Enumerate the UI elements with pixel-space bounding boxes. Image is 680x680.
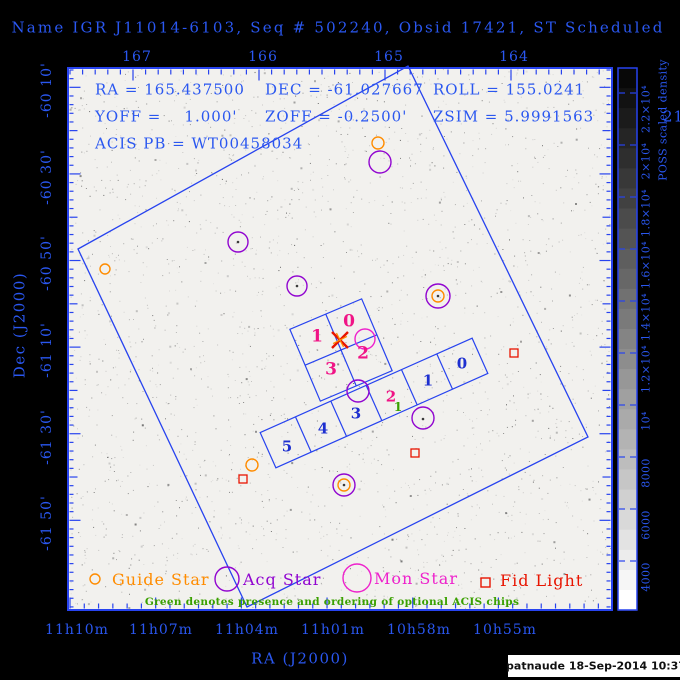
optional-chips-note: Green denotes presence and ordering of o… [145, 597, 519, 608]
colorbar [618, 68, 637, 611]
acis-s-chip-label: 4 [318, 422, 328, 437]
colorbar-tick: 6000 [641, 510, 652, 540]
acis-i-chip-label: 2 [357, 346, 369, 363]
left-axis-tick: -61 50' [40, 495, 54, 551]
left-axis-tick: -60 30' [40, 149, 54, 205]
acis-i-chip-label: 3 [325, 362, 337, 379]
acis-s-chip-label: 0 [457, 357, 467, 372]
legend-mon-star-label: Mon Star [374, 571, 458, 587]
legend-guide-star-label: Guide Star [112, 572, 210, 588]
bottom-axis-tick: 11h04m [215, 623, 279, 637]
colorbar-tick: 1.6×10⁴ [641, 241, 652, 289]
bottom-axis-tick: 10h55m [473, 623, 537, 637]
colorbar-tick: 4000 [641, 562, 652, 592]
credit-box: patnaude 18-Sep-2014 10:37 [508, 655, 680, 677]
legend-fid-light-label: Fid Light [500, 573, 583, 589]
legend-acq-star-label: Acq Star [243, 572, 321, 588]
acis-i-chip-label: 1 [311, 329, 323, 346]
star-dot [237, 241, 240, 244]
bottom-axis-tick: 11h07m [129, 623, 193, 637]
param-acis-pb: ACIS PB = WT00458034 [95, 137, 303, 152]
acis-s-chip-label: 3 [351, 407, 361, 422]
star-dot [296, 285, 299, 288]
param-zoff: ZOFF = -0.2500' [265, 110, 407, 125]
bottom-axis-tick: 11h01m [301, 623, 365, 637]
colorbar-tick: 10⁴ [641, 411, 652, 431]
left-axis-tick: -60 10' [40, 62, 54, 118]
colorbar-label: POSS scaled density [658, 59, 669, 181]
top-axis-tick: 167 [122, 50, 152, 64]
x-axis-label: RA (J2000) [251, 652, 349, 667]
star-dot [437, 295, 440, 298]
colorbar-tick: 8000 [641, 458, 652, 488]
colorbar-tick: 1.4×10⁴ [641, 293, 652, 341]
param-roll: ROLL = 155.0241 [433, 83, 585, 98]
credit-text: patnaude 18-Sep-2014 10:37 [506, 661, 680, 672]
param-ra: RA = 165.437500 [95, 83, 245, 98]
acis-i-chip-label: 0 [343, 314, 355, 331]
param-yoff: YOFF = 1.000' [95, 110, 238, 125]
top-axis-tick: 164 [499, 50, 529, 64]
acis-s-optional-order-label: 1 [394, 401, 402, 413]
left-axis-tick: -61 30' [40, 409, 54, 465]
colorbar-tick: 2.2×10⁴ [641, 85, 652, 133]
left-axis-tick: -60 50' [40, 235, 54, 291]
observation-plot-window: Name IGR J11014-6103, Seq # 502240, Obsi… [0, 0, 680, 680]
param-dec: DEC = -61.027667 [265, 83, 424, 98]
left-axis-tick: -61 10' [40, 322, 54, 378]
colorbar-tick: 2×10⁴ [641, 143, 652, 180]
y-axis-label: Dec (J2000) [13, 272, 28, 378]
param-zsim: ZSIM = 5.9991563 [433, 110, 594, 125]
bottom-axis-tick: 11h10m [45, 623, 109, 637]
star-dot [343, 484, 346, 487]
acis-s-chip-label: 5 [282, 440, 292, 455]
colorbar-tick: 1.8×10⁴ [641, 189, 652, 237]
acis-s-chip-label: 1 [423, 374, 433, 389]
top-axis-tick: 165 [374, 50, 404, 64]
top-axis-tick: 166 [248, 50, 278, 64]
page-title: Name IGR J11014-6103, Seq # 502240, Obsi… [11, 21, 664, 36]
bottom-axis-tick: 10h58m [387, 623, 451, 637]
star-dot [422, 418, 425, 421]
colorbar-tick: 1.2×10⁴ [641, 345, 652, 393]
